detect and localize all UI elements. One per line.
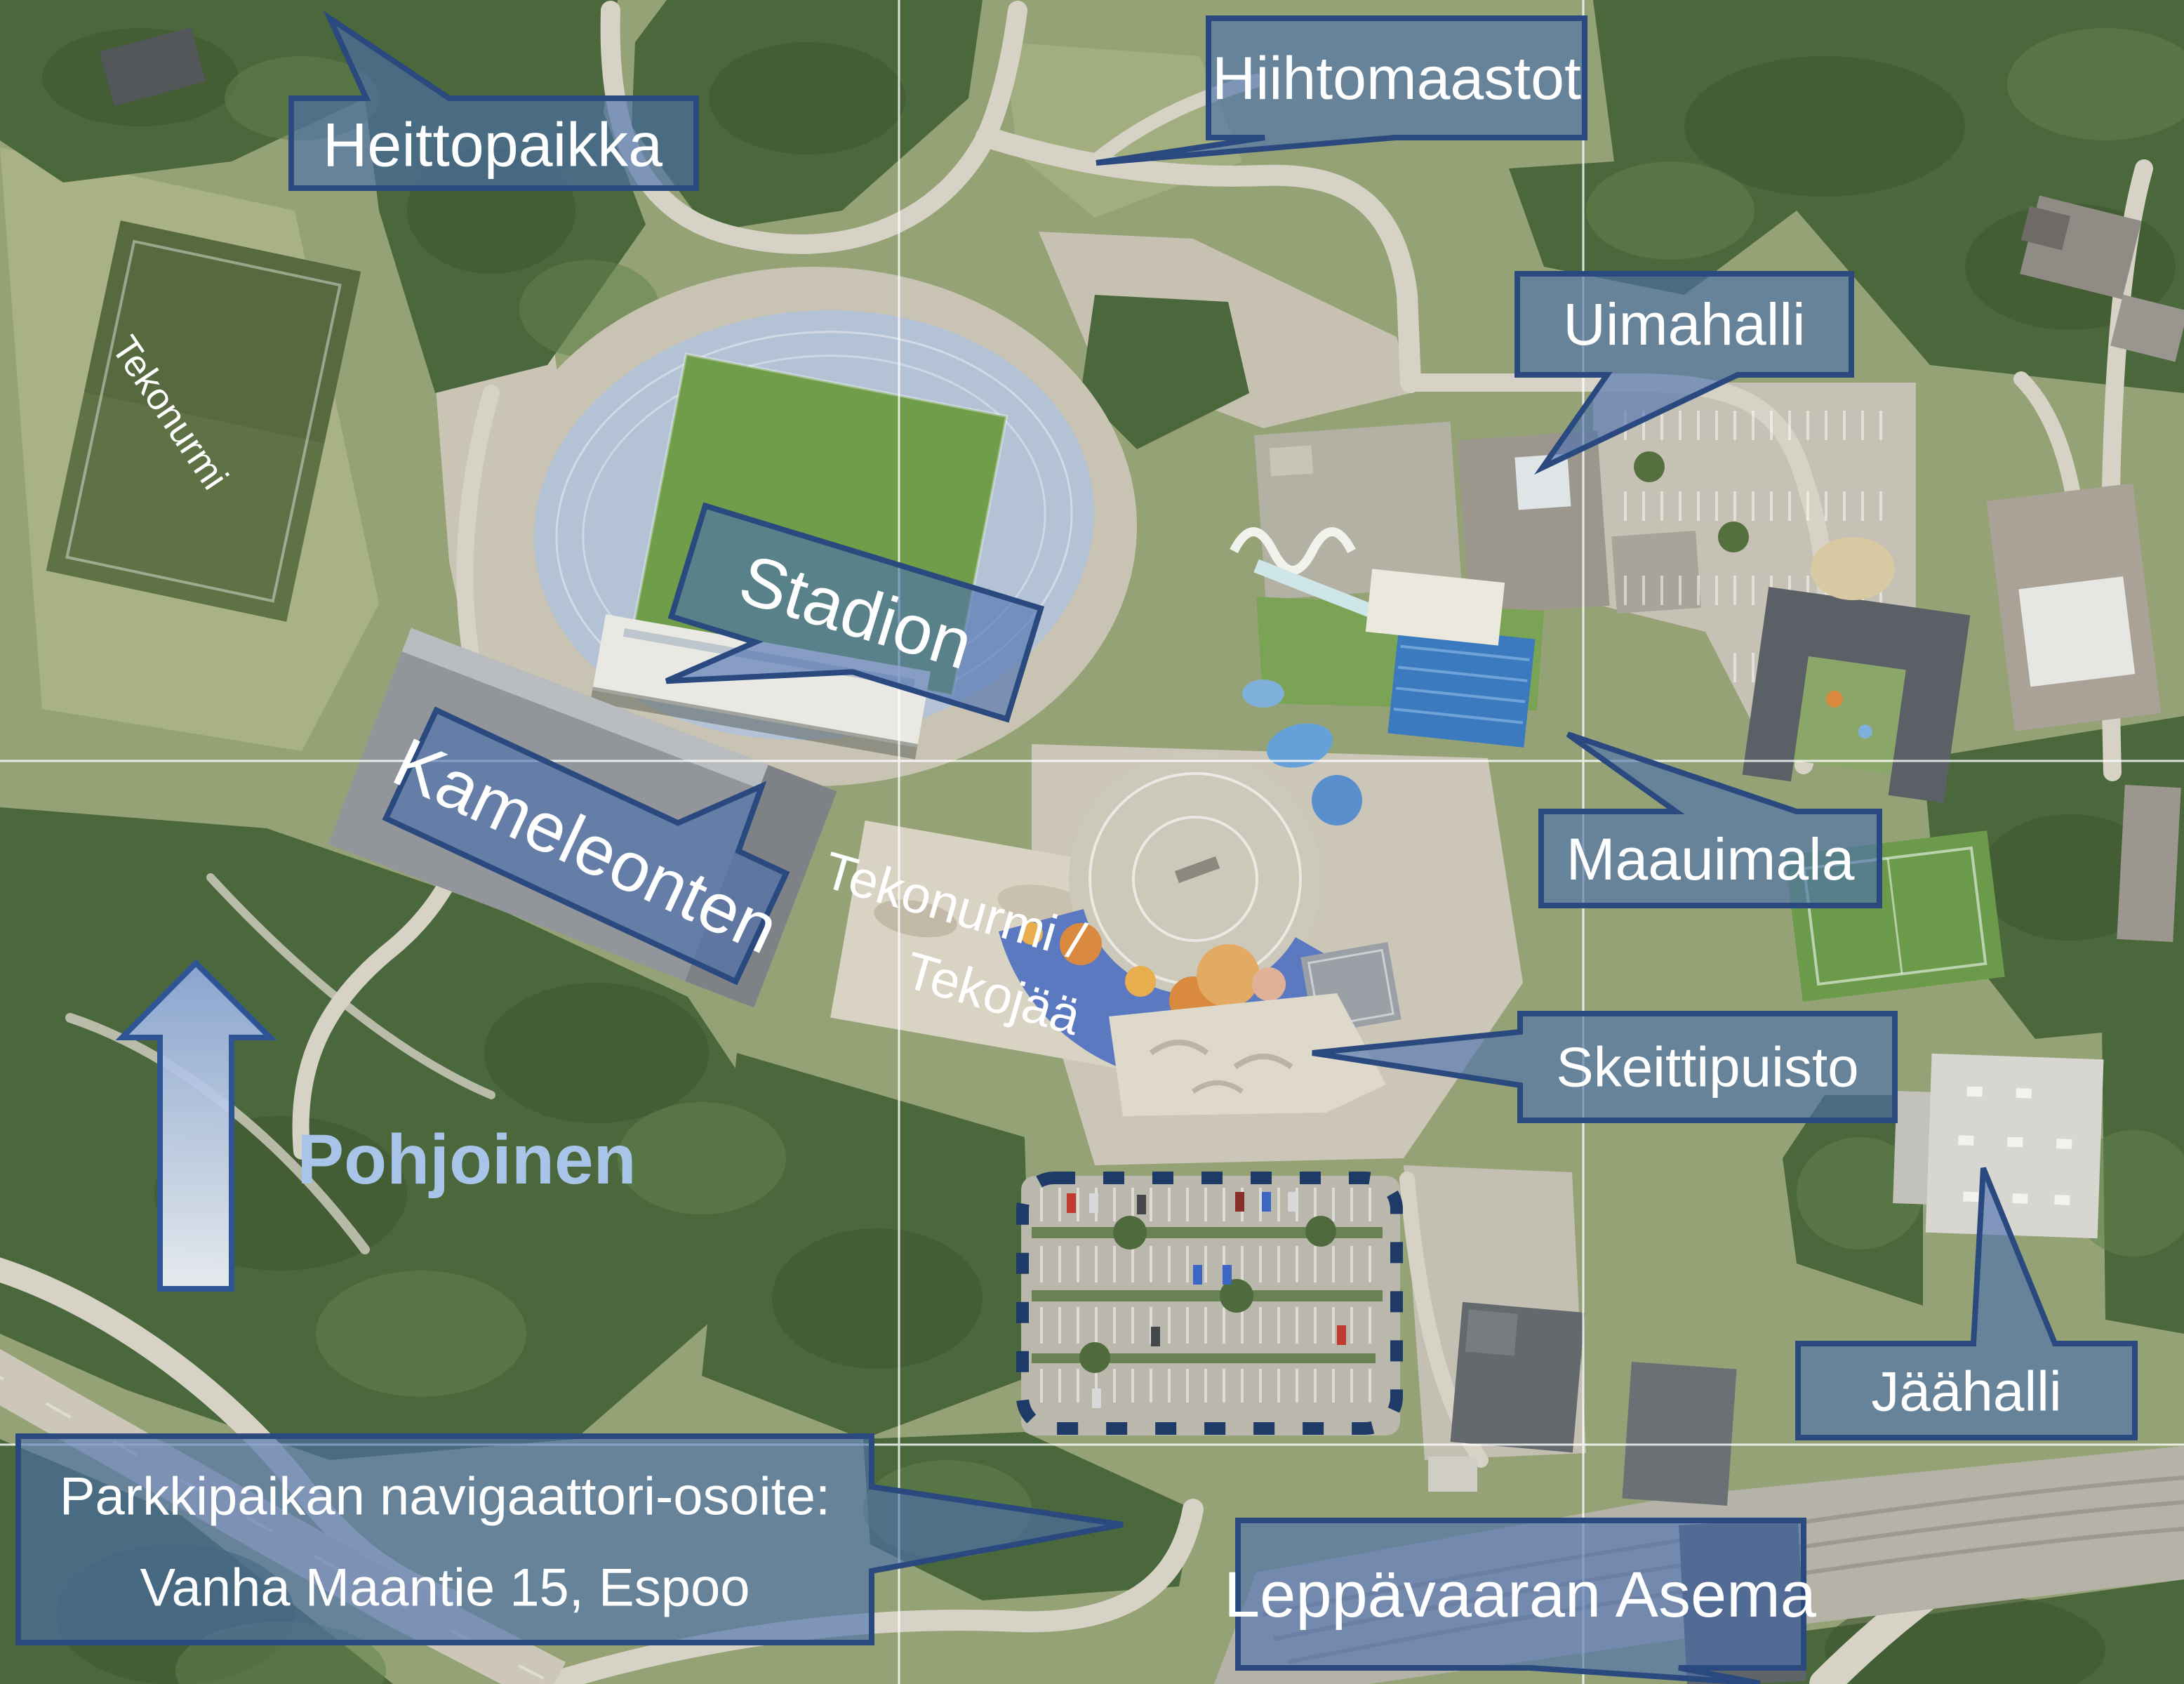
callout-heittopaikka-label: Heittopaikka xyxy=(323,110,662,180)
callout-maauimala-label: Maauimala xyxy=(1566,826,1855,892)
callout-uimahalli-label: Uimahalli xyxy=(1563,291,1805,357)
callout-leppavaaran-asema: Leppävaaran Asema xyxy=(1224,1520,1817,1683)
callout-leppavaaran-asema-label: Leppävaaran Asema xyxy=(1224,1559,1817,1631)
callout-parking-address-line2: Vanha Maantie 15, Espoo xyxy=(140,1558,750,1618)
annotated-aerial-map: Tekonurmi Tekonurmi / Tekojää Pohjoinen … xyxy=(0,0,2184,1684)
callout-hiihtomaastot-label: Hiihtomaastot xyxy=(1212,45,1581,112)
playground-sandbox xyxy=(1811,537,1895,600)
aerial-map-canvas: Tekonurmi Tekonurmi / Tekojää Pohjoinen … xyxy=(0,0,2184,1684)
callout-skeittipuisto-label: Skeittipuisto xyxy=(1556,1036,1858,1099)
main-parking-lot xyxy=(1021,1176,1400,1436)
callout-jaahalli-label: Jäähalli xyxy=(1871,1360,2061,1423)
far-east-building xyxy=(2117,785,2180,942)
callout-parking-address-line1: Parkkipaikan navigaattori-osoite: xyxy=(60,1467,830,1527)
compass-label: Pohjoinen xyxy=(297,1120,636,1199)
east-building xyxy=(1987,483,2162,731)
